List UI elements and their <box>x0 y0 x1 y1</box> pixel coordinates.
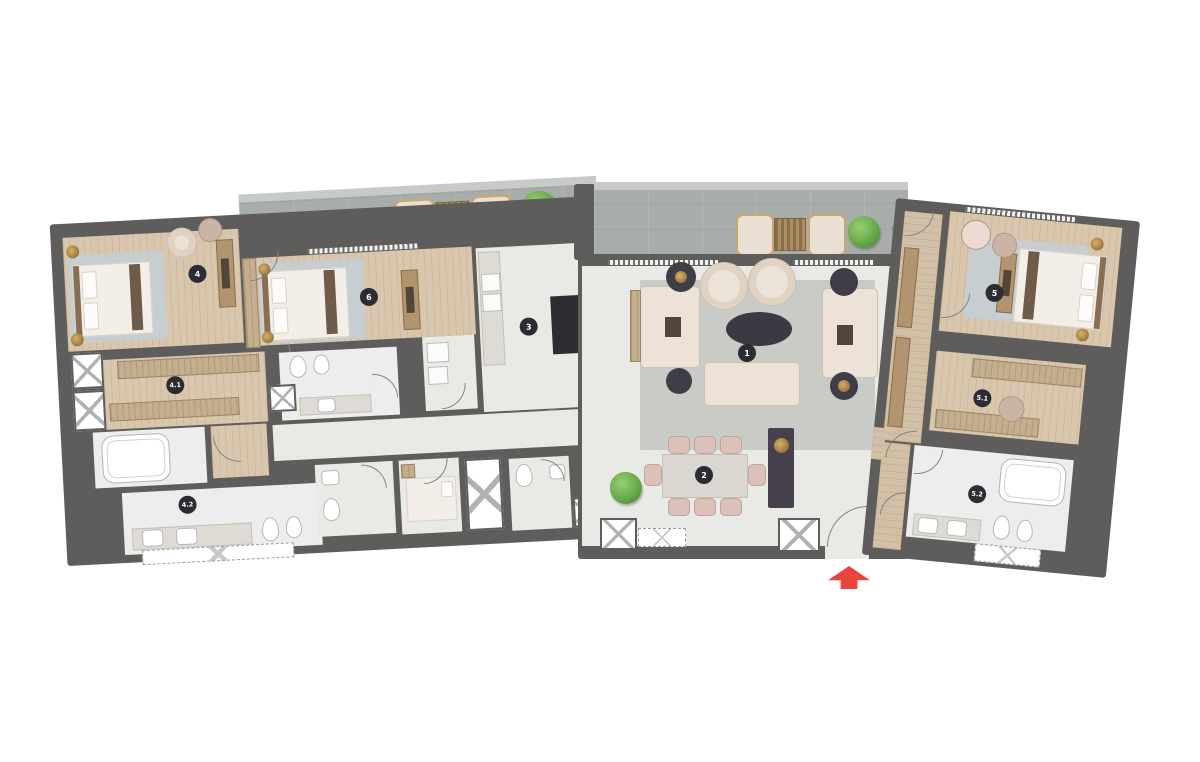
hatch-closet <box>638 528 686 547</box>
washer <box>428 366 449 385</box>
window-strip <box>793 260 873 265</box>
sofa-console <box>630 290 641 362</box>
balcony-plant <box>848 216 880 248</box>
table-lamp <box>838 380 850 392</box>
window-strip <box>608 260 718 265</box>
room-badge-2: 2 <box>695 466 713 484</box>
oven <box>481 273 501 292</box>
shaft <box>465 457 505 531</box>
bathtub <box>101 433 171 484</box>
shaft <box>268 384 296 412</box>
balcony-divider-wall <box>574 184 596 260</box>
shaft <box>72 390 106 432</box>
nightstand <box>401 464 416 479</box>
dining-chair <box>668 498 690 516</box>
shaft <box>778 518 820 552</box>
shaft <box>600 518 637 550</box>
outdoor-armchair <box>808 214 846 256</box>
table-lamp <box>675 271 687 283</box>
bedroom-4-bed <box>72 261 154 337</box>
bathtub <box>998 457 1068 507</box>
round-armchair <box>748 258 796 306</box>
bedroom-6-bed <box>260 267 350 341</box>
outdoor-table <box>774 218 806 251</box>
side-table-dark <box>666 368 692 394</box>
dining-chair <box>694 498 716 516</box>
oven <box>482 293 502 312</box>
sink <box>317 398 336 413</box>
utility-sink <box>426 342 449 363</box>
right-wing: 5 5.1 5.2 <box>860 190 1140 592</box>
dining-chair <box>720 498 742 516</box>
room-badge-1: 1 <box>738 344 756 362</box>
side-table-dark <box>830 268 858 296</box>
dining-chair <box>748 464 766 486</box>
floor-plan: 4 4.1 4.2 6 <box>50 176 1150 606</box>
coffee-table <box>726 312 792 346</box>
sink <box>176 527 198 545</box>
outdoor-armchair <box>736 214 774 256</box>
shaft <box>70 352 104 390</box>
sofa-left <box>640 286 700 368</box>
left-wing: 4 4.1 4.2 6 <box>49 176 613 589</box>
entrance-arrow <box>828 566 870 589</box>
decor-bowl <box>774 438 789 453</box>
round-armchair <box>700 262 748 310</box>
sofa-bottom <box>704 362 800 406</box>
center-section: 1 2 <box>578 176 908 596</box>
sink <box>917 517 938 535</box>
dining-chair <box>720 436 742 454</box>
dining-chair <box>694 436 716 454</box>
dining-chair <box>668 436 690 454</box>
sofa-right <box>822 288 878 378</box>
bedroom-4-bench <box>216 239 237 308</box>
bedroom-5-bed <box>1013 248 1108 330</box>
dining-chair <box>644 464 662 486</box>
bedroom-6-bench <box>401 269 421 330</box>
sink <box>946 519 967 537</box>
sink <box>321 470 340 486</box>
sink <box>142 529 164 547</box>
indoor-plant <box>610 472 642 504</box>
